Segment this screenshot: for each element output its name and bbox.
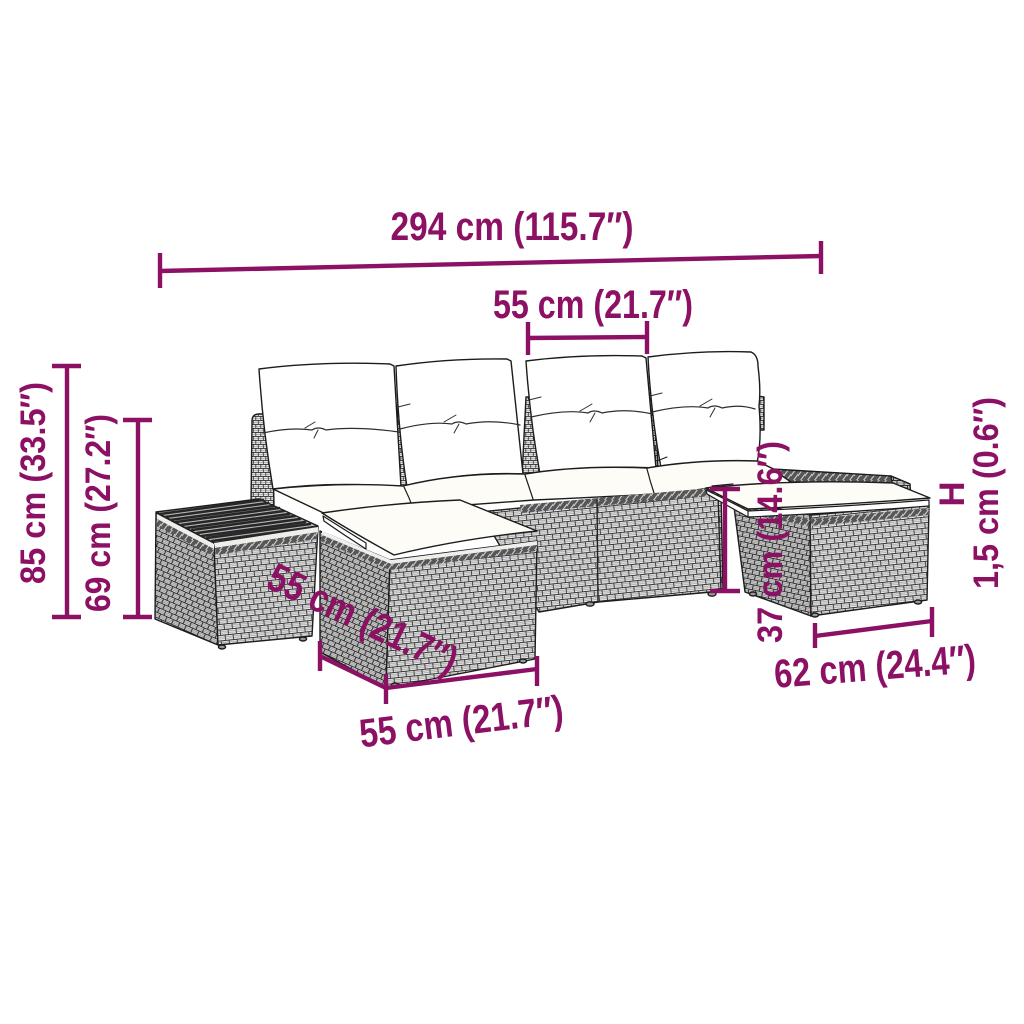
svg-text:55 cm (21.7″): 55 cm (21.7″) (493, 283, 693, 327)
svg-text:69 cm (27.2″): 69 cm (27.2″) (79, 414, 118, 612)
svg-text:37 cm (14.6″): 37 cm (14.6″) (751, 441, 790, 643)
svg-text:294 cm (115.7″): 294 cm (115.7″) (391, 205, 634, 249)
svg-text:1,5 cm (0.6″): 1,5 cm (0.6″) (967, 397, 1006, 589)
svg-text:85 cm (33.5″): 85 cm (33.5″) (14, 382, 53, 584)
svg-text:H: H (933, 481, 972, 506)
